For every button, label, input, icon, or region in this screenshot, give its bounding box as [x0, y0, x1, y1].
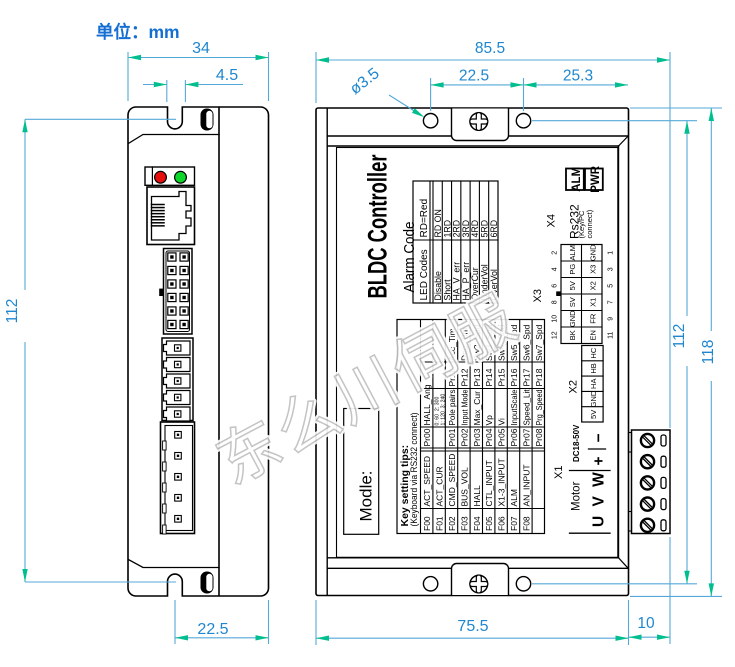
svg-text:4: 4	[552, 267, 559, 271]
svg-text:F01: F01	[435, 516, 445, 531]
svg-text:Prg_Speed: Prg_Speed	[534, 389, 544, 425]
svg-text:7: 7	[608, 300, 615, 304]
svg-text:DC18-50V: DC18-50V	[572, 424, 581, 462]
svg-text:X2: X2	[568, 380, 580, 393]
svg-text:−: −	[591, 433, 608, 442]
svg-text:Speed_Lit: Speed_Lit	[521, 389, 531, 426]
svg-text:InputScale: InputScale	[509, 389, 519, 425]
svg-text:Pr18: Pr18	[534, 368, 544, 386]
svg-text:Pr04: Pr04	[484, 428, 494, 446]
svg-text:Pr14: Pr14	[484, 368, 494, 386]
svg-text:X1: X1	[553, 466, 565, 479]
svg-text:22.5: 22.5	[459, 68, 489, 85]
svg-text:Alarm Code: Alarm Code	[401, 222, 418, 293]
svg-text:Max_Cur: Max_Cur	[472, 391, 482, 426]
svg-text:GND: GND	[568, 310, 577, 327]
svg-text:X4: X4	[546, 214, 558, 227]
svg-text:118: 118	[700, 340, 717, 365]
svg-text:+: +	[591, 456, 608, 465]
svg-text:8: 8	[552, 300, 559, 304]
svg-text:Pr01: Pr01	[447, 428, 457, 446]
svg-text:HA: HA	[589, 379, 598, 389]
svg-text:GND: GND	[589, 390, 598, 407]
svg-text:Pr15: Pr15	[497, 368, 507, 386]
svg-text:BUS_VOL: BUS_VOL	[459, 467, 469, 506]
svg-text:ACT_CUR: ACT_CUR	[435, 466, 445, 506]
svg-text:BK: BK	[568, 330, 577, 340]
svg-text:F05: F05	[484, 516, 494, 531]
svg-text:Motor: Motor	[571, 481, 583, 511]
svg-text:ALM: ALM	[571, 167, 583, 192]
svg-text:单位：mm: 单位：mm	[96, 22, 180, 42]
svg-text:RD=Red: RD=Red	[419, 199, 430, 238]
svg-text:CTL_INPUT: CTL_INPUT	[484, 460, 494, 506]
svg-text:12: 12	[552, 331, 559, 339]
svg-text:FR: FR	[589, 313, 598, 324]
svg-text:HALL: HALL	[472, 485, 482, 507]
svg-text:X2: X2	[589, 281, 598, 290]
svg-text:PWR: PWR	[590, 165, 602, 193]
svg-text:SV: SV	[568, 297, 577, 307]
svg-text:25.3: 25.3	[563, 68, 593, 85]
svg-text:Pr03: Pr03	[472, 428, 482, 446]
svg-text:Pr17: Pr17	[521, 368, 531, 386]
svg-text:6RD: 6RD	[489, 220, 499, 238]
svg-text:CMD_SPEED: CMD_SPEED	[447, 454, 457, 507]
svg-text:3: 3	[608, 267, 615, 271]
svg-text:HC: HC	[589, 347, 598, 358]
svg-text:5V: 5V	[589, 410, 598, 419]
svg-text:X3: X3	[532, 289, 544, 302]
svg-text:6: 6	[552, 284, 559, 288]
svg-text:F00: F00	[422, 516, 432, 531]
svg-text:10: 10	[552, 315, 559, 323]
svg-text:4.5: 4.5	[216, 67, 238, 84]
svg-text:Vp: Vp	[484, 415, 494, 426]
svg-text:BLDC Controller: BLDC Controller	[363, 155, 393, 299]
svg-text:Vi: Vi	[497, 418, 507, 426]
svg-text:F06: F06	[497, 516, 507, 531]
svg-text:EN: EN	[589, 330, 598, 340]
svg-text:X1-3_INPUT: X1-3_INPUT	[497, 458, 507, 506]
svg-text:11: 11	[608, 332, 615, 339]
svg-text:F08: F08	[521, 516, 531, 531]
svg-text:85.5: 85.5	[475, 40, 505, 57]
svg-text:Input Mode: Input Mode	[459, 389, 469, 425]
svg-text:GND: GND	[589, 244, 598, 261]
svg-text:Pr08: Pr08	[534, 428, 544, 446]
svg-text:Modle:: Modle:	[357, 470, 376, 521]
svg-text:112: 112	[671, 324, 688, 349]
svg-text:1: 1	[608, 251, 615, 255]
svg-text:2: 2	[552, 251, 559, 255]
svg-text:5V: 5V	[568, 281, 577, 290]
svg-text:F07: F07	[509, 516, 519, 531]
svg-text:Pr05: Pr05	[497, 428, 507, 446]
svg-text:X3: X3	[589, 265, 598, 274]
svg-text:34: 34	[192, 40, 210, 57]
svg-text:F04: F04	[472, 516, 482, 531]
svg-text:Pr16: Pr16	[509, 368, 519, 386]
svg-text:Pr02: Pr02	[459, 428, 469, 446]
svg-text:5: 5	[608, 284, 615, 288]
svg-text:F03: F03	[459, 516, 469, 531]
svg-text:F02: F02	[447, 516, 457, 531]
svg-text:75.5: 75.5	[457, 618, 488, 635]
svg-text:Pr07: Pr07	[521, 428, 531, 446]
svg-text:ACT_SPEED: ACT_SPEED	[422, 456, 432, 507]
svg-text:PG: PG	[568, 264, 577, 275]
svg-text:ALM: ALM	[568, 245, 577, 260]
svg-text:(Keyboard via RS232 connect): (Keyboard via RS232 connect)	[409, 413, 419, 527]
svg-text:22.5: 22.5	[197, 621, 228, 638]
svg-text:112: 112	[4, 299, 21, 324]
svg-text:9: 9	[608, 317, 615, 321]
svg-text:LED Codes: LED Codes	[419, 249, 430, 300]
svg-text:10: 10	[637, 615, 655, 632]
svg-text:ALM: ALM	[509, 489, 519, 506]
svg-text:Sw7_Spd: Sw7_Spd	[534, 324, 544, 361]
svg-text:Pr06: Pr06	[509, 428, 519, 446]
svg-text:Pr00: Pr00	[422, 428, 432, 446]
svg-text:connect): connect)	[585, 209, 594, 238]
svg-text:HB: HB	[589, 363, 598, 373]
svg-text:1: 120 3: 240: 1: 120 3: 240	[440, 394, 446, 426]
svg-text:U V W: U V W	[591, 470, 608, 527]
svg-text:Pole pairs: Pole pairs	[447, 390, 457, 426]
svg-text:X1: X1	[589, 298, 598, 307]
svg-text:AN_INPUT: AN_INPUT	[521, 464, 531, 506]
